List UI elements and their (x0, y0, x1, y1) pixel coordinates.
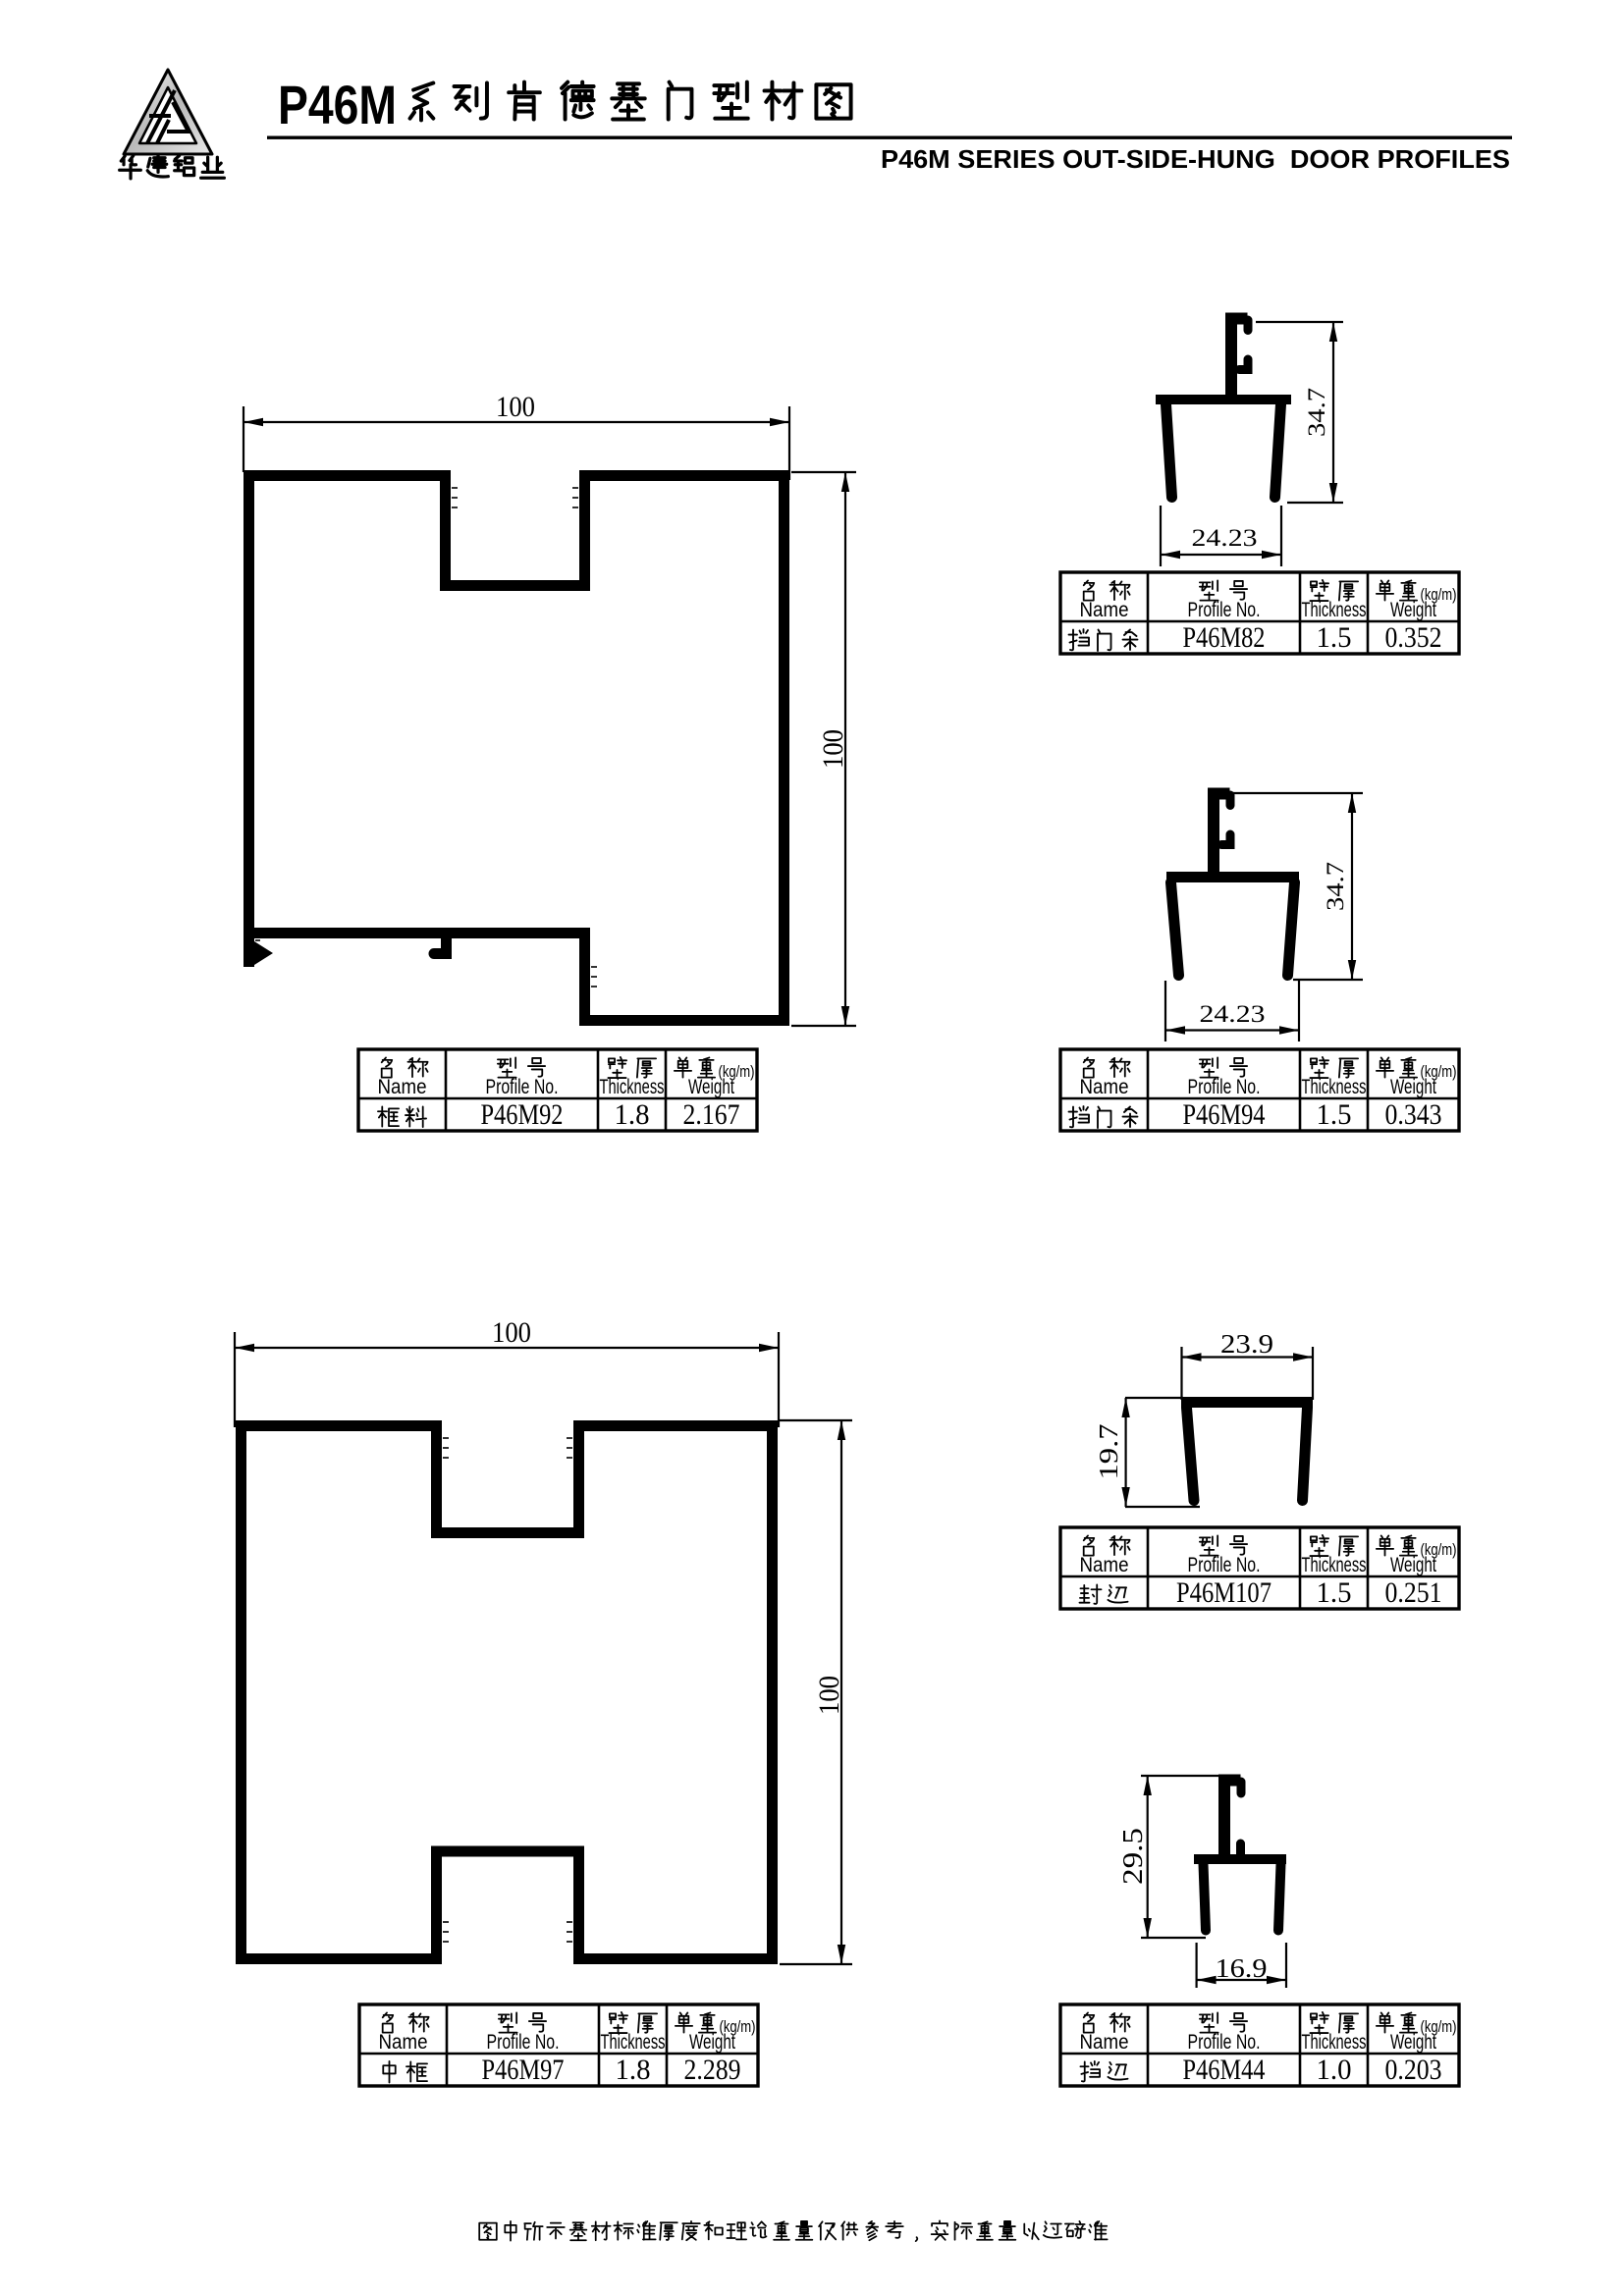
svg-text:Profile No.: Profile No. (1188, 2031, 1261, 2054)
svg-text:Weight: Weight (1390, 1076, 1436, 1098)
svg-text:Name: Name (379, 2031, 428, 2054)
svg-text:Profile No.: Profile No. (1188, 599, 1261, 621)
svg-text:0.343: 0.343 (1385, 1098, 1442, 1131)
svg-text:Name: Name (1080, 599, 1129, 621)
svg-text:Thickness: Thickness (1302, 1554, 1367, 1576)
svg-text:Weight: Weight (1390, 599, 1436, 621)
svg-text:Thickness: Thickness (1302, 599, 1367, 621)
svg-text:1.8: 1.8 (616, 2054, 651, 2086)
svg-text:1.5: 1.5 (1317, 621, 1352, 654)
svg-text:1.8: 1.8 (615, 1098, 650, 1131)
svg-text:0.352: 0.352 (1385, 621, 1442, 654)
svg-text:P46M: P46M (278, 74, 397, 135)
svg-text:23.9: 23.9 (1220, 1329, 1273, 1359)
svg-text:0.203: 0.203 (1385, 2054, 1442, 2086)
svg-text:Thickness: Thickness (1302, 1076, 1367, 1098)
svg-text:34.7: 34.7 (1304, 388, 1330, 437)
svg-text:Profile No.: Profile No. (1188, 1076, 1261, 1098)
svg-text:29.5: 29.5 (1118, 1828, 1149, 1885)
svg-text:P46M44: P46M44 (1183, 2054, 1266, 2086)
svg-text:1.5: 1.5 (1317, 1576, 1352, 1609)
svg-text:P46M97: P46M97 (482, 2054, 565, 2086)
svg-text:Name: Name (1080, 1554, 1129, 1576)
svg-text:P46M94: P46M94 (1183, 1098, 1266, 1131)
svg-text:P46M SERIES OUT-SIDE-HUNG DOO: P46M SERIES OUT-SIDE-HUNG DOOR PROFILES (881, 144, 1510, 174)
svg-text:Weight: Weight (1390, 1554, 1436, 1576)
svg-text:24.23: 24.23 (1200, 1001, 1266, 1028)
svg-text:Profile No.: Profile No. (1188, 1554, 1261, 1576)
svg-text:34.7: 34.7 (1323, 862, 1349, 911)
svg-text:100: 100 (817, 729, 849, 769)
svg-text:100: 100 (492, 1316, 531, 1349)
svg-text:Thickness: Thickness (1302, 2031, 1367, 2054)
svg-text:P46M107: P46M107 (1176, 1576, 1271, 1609)
svg-text:Name: Name (1080, 1076, 1129, 1098)
svg-text:2.289: 2.289 (684, 2054, 741, 2086)
svg-text:1.5: 1.5 (1317, 1098, 1352, 1131)
svg-text:19.7: 19.7 (1094, 1424, 1123, 1480)
svg-text:Weight: Weight (1390, 2031, 1436, 2054)
svg-text:100: 100 (496, 391, 535, 423)
svg-text:Weight: Weight (688, 1076, 734, 1098)
svg-text:Thickness: Thickness (601, 2031, 666, 2054)
svg-text:Thickness: Thickness (600, 1076, 665, 1098)
svg-text:Weight: Weight (689, 2031, 735, 2054)
svg-text:24.23: 24.23 (1192, 525, 1258, 552)
svg-text:2.167: 2.167 (683, 1098, 740, 1131)
svg-text:Name: Name (378, 1076, 427, 1098)
svg-text:0.251: 0.251 (1385, 1576, 1442, 1609)
svg-text:1.0: 1.0 (1317, 2054, 1352, 2086)
svg-text:100: 100 (813, 1676, 845, 1715)
svg-text:Name: Name (1080, 2031, 1129, 2054)
svg-text:Profile No.: Profile No. (487, 2031, 560, 2054)
svg-text:P46M82: P46M82 (1183, 621, 1266, 654)
svg-text:P46M92: P46M92 (481, 1098, 564, 1131)
svg-text:16.9: 16.9 (1216, 1953, 1268, 1983)
svg-text:Profile No.: Profile No. (486, 1076, 559, 1098)
